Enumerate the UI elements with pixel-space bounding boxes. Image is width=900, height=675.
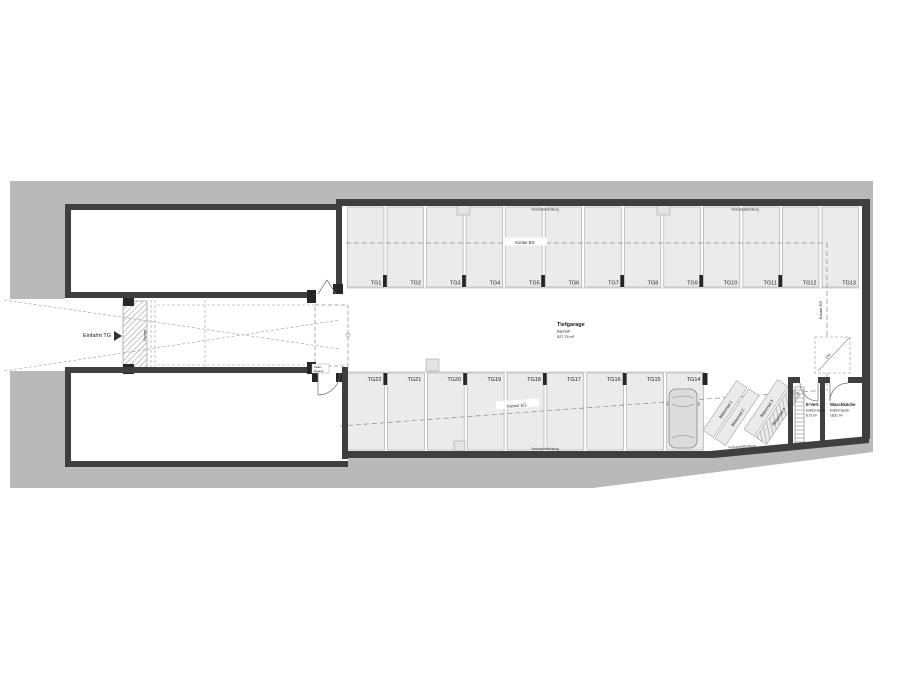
stall-label: TG15 <box>647 377 661 383</box>
parking-stall-TG1: TG1 <box>348 207 385 287</box>
room-wasch-area: 18,81 m² <box>830 414 843 418</box>
stall-label: TG8 <box>648 281 659 287</box>
stall-label: TG21 <box>408 377 422 383</box>
parking-stall-TG11: TG11 <box>743 207 780 287</box>
floorplan-page: TG1TG2TG3TG4TG5TG6TG7TG8TG9TG10TG11TG12T… <box>0 0 900 675</box>
garage-surface: Asphalt <box>557 330 571 334</box>
stall-label: TG20 <box>447 377 461 383</box>
wall-note-top-1: Verbundabdichtung <box>531 208 559 212</box>
contour-label-top: Kontur EG <box>515 240 535 245</box>
parking-stall-TG17: TG17 <box>547 373 584 450</box>
room-evert-name: E-Vert. <box>806 402 820 407</box>
stall-label: TG12 <box>803 281 817 287</box>
stall-label: TG2 <box>410 281 421 287</box>
stall-label: TG5 <box>529 281 540 287</box>
parking-stall-TG3: TG3 <box>427 207 464 287</box>
stall-label: TG3 <box>450 281 461 287</box>
parking-row-bottom: TG22TG21TG20TG19TG18TG17TG16TG15TG14 <box>348 373 708 450</box>
stall-label: TG7 <box>608 281 619 287</box>
entrance-label: Einfahrt TG <box>83 333 111 339</box>
parking-stall-TG13: TG13 <box>822 207 859 287</box>
parking-stall-TG5: TG5 <box>506 207 543 287</box>
wall-note-top-2: Verbundabdichtung <box>731 208 759 212</box>
parking-stall-TG20: TG20 <box>427 373 464 450</box>
stall-label: TG17 <box>567 377 581 383</box>
stall-label: TG22 <box>368 377 382 383</box>
contour-label-right: Kontur EG <box>818 301 823 320</box>
stall-label: TG4 <box>489 281 500 287</box>
parking-stall-TG8: TG8 <box>624 207 661 287</box>
parking-stall-TG9: TG9 <box>664 207 701 287</box>
stall-label: TG10 <box>724 281 738 287</box>
parking-stall-TG6: TG6 <box>545 207 582 287</box>
parking-stall-TG10: TG10 <box>703 207 740 287</box>
parking-stall-TG21: TG21 <box>387 373 424 450</box>
parking-stall-TG22: TG22 <box>348 373 385 450</box>
car-top-view <box>666 389 700 448</box>
stall-label: TG16 <box>607 377 621 383</box>
ramp-label: Rampe <box>143 329 147 340</box>
parking-stall-TG18: TG18 <box>507 373 544 450</box>
ladder-shaft <box>795 387 804 444</box>
stall-label: TG9 <box>687 281 698 287</box>
garage-title: Tiefgarage <box>557 322 585 328</box>
stall-label: TG6 <box>568 281 579 287</box>
garage-area: 527,75 m² <box>557 335 575 339</box>
stall-label: TG11 <box>764 281 777 287</box>
pillar <box>703 373 708 385</box>
parking-stall-TG19: TG19 <box>467 373 504 450</box>
stall-label: TG1 <box>371 281 382 287</box>
parking-stall-TG4: TG4 <box>466 207 503 287</box>
room-evert-finish: Estrich besch. <box>806 409 826 413</box>
parking-stall-TG7: TG7 <box>585 207 622 287</box>
door-note-line2: abgang <box>314 369 324 373</box>
room-wasch-name: Waschküche <box>830 402 856 407</box>
room-wasch-finish: Estrich besch. <box>830 409 850 413</box>
stall-label: TG19 <box>487 377 501 383</box>
parking-stall-TG16: TG16 <box>587 373 624 450</box>
stall-label: TG18 <box>527 377 541 383</box>
stall-label: TG13 <box>842 281 856 287</box>
parking-stall-TG2: TG2 <box>387 207 424 287</box>
parking-stall-TG15: TG15 <box>627 373 664 450</box>
parking-stall-TG12: TG12 <box>782 207 819 287</box>
stall-label: TG14 <box>687 377 701 383</box>
wall-note-bottom-1: Verbundabdichtung <box>531 447 559 451</box>
room-evert-area: 8,73 m² <box>806 414 817 418</box>
floor-plan-svg: TG1TG2TG3TG4TG5TG6TG7TG8TG9TG10TG11TG12T… <box>0 0 900 675</box>
